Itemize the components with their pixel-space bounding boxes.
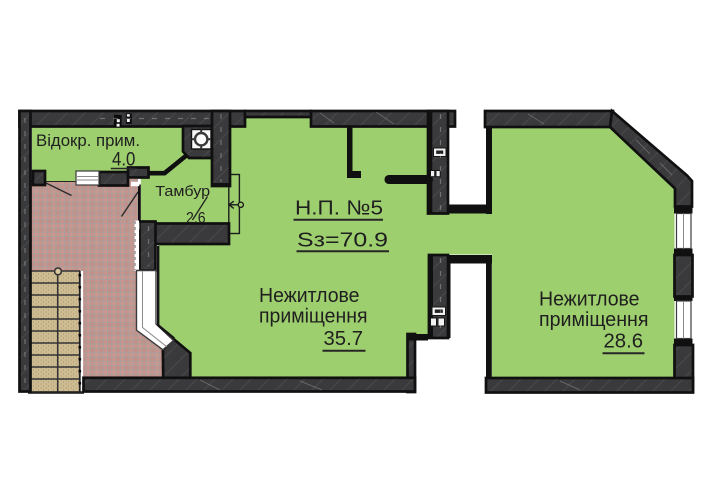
svg-text:приміщення: приміщення xyxy=(539,309,649,331)
svg-text:2.6: 2.6 xyxy=(186,210,206,227)
svg-text:Нежитлове: Нежитлове xyxy=(539,289,640,311)
svg-text:Нежитлове: Нежитлове xyxy=(259,285,360,307)
svg-text:Відокр. прим.: Відокр. прим. xyxy=(36,132,140,150)
svg-text:приміщення: приміщення xyxy=(259,306,368,328)
svg-text:Sз=70.9: Sз=70.9 xyxy=(297,228,388,251)
svg-text:Н.П. №5: Н.П. №5 xyxy=(295,197,383,220)
svg-text:4.0: 4.0 xyxy=(112,150,135,171)
svg-text:Тамбур: Тамбур xyxy=(155,183,210,200)
svg-text:28.6: 28.6 xyxy=(604,330,644,352)
svg-text:35.7: 35.7 xyxy=(324,328,364,350)
